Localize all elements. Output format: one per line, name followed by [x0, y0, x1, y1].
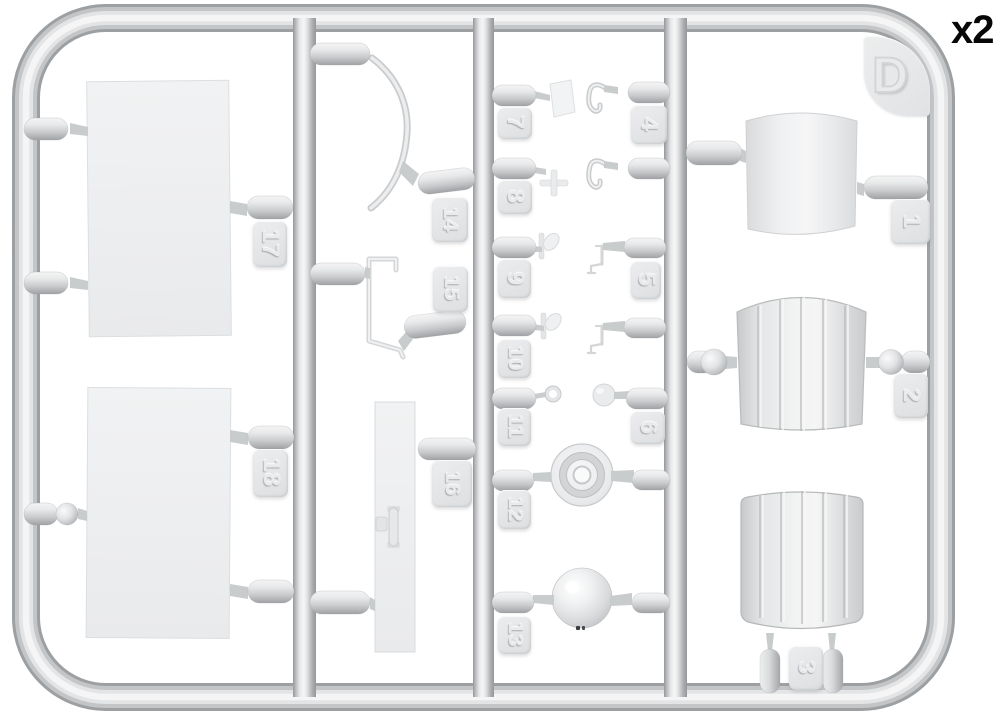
runner-2	[473, 18, 494, 697]
part-15-bracket	[369, 259, 403, 357]
part-16-panel	[375, 402, 415, 652]
part-tag-10: 10	[498, 339, 531, 378]
part-18-panel	[86, 388, 231, 639]
gate-ball	[56, 503, 78, 525]
part-tag-14: 14	[432, 197, 468, 242]
part-3-ribbed-panel	[741, 490, 863, 629]
part-tag-7: 7	[498, 107, 532, 139]
part-4-hooks	[589, 85, 605, 187]
part-1-curved-panel	[746, 113, 857, 234]
part-11-ring	[545, 386, 561, 402]
part-tag-17: 17	[253, 221, 287, 267]
part-tag-5: 5	[631, 261, 661, 299]
part-tag-9: 9	[498, 259, 531, 298]
part-tag-3: 3	[789, 646, 823, 690]
quantity-label: x2	[951, 8, 994, 53]
part-13-sphere	[552, 568, 612, 630]
gate-ball	[701, 349, 727, 375]
part-tag-15: 15	[433, 266, 468, 312]
part-tag-8: 8	[498, 180, 532, 214]
part-2-ribbed-panel	[737, 296, 866, 431]
part-tag-2: 2	[894, 373, 928, 418]
part-tag-4: 4	[631, 105, 667, 144]
part-tag-13: 13	[498, 616, 531, 654]
gate-ball	[879, 350, 904, 375]
part-tag-18: 18	[253, 449, 288, 497]
part-tag-6: 6	[631, 411, 665, 444]
part-tag-16: 16	[432, 460, 472, 507]
part-9-handle	[539, 233, 559, 259]
part-7-plate	[550, 80, 575, 117]
part-14-curved-rod	[371, 58, 407, 208]
part-tag-12: 12	[498, 490, 531, 529]
part-10-handle	[541, 313, 561, 339]
sprue-d-photo: 1 2 3 4 5 6 7 8 9 10 11 12 13 14 15 16 1…	[0, 0, 1000, 719]
part-tag-11: 11	[498, 408, 531, 446]
part-6-ball	[593, 384, 615, 406]
part-5-cranks	[588, 246, 608, 353]
part-12-pulley-disc	[551, 444, 613, 506]
part-17-panel	[87, 80, 232, 336]
runner-3	[664, 18, 687, 697]
part-tag-1: 1	[891, 199, 930, 244]
sprue-letter: D	[872, 46, 908, 104]
